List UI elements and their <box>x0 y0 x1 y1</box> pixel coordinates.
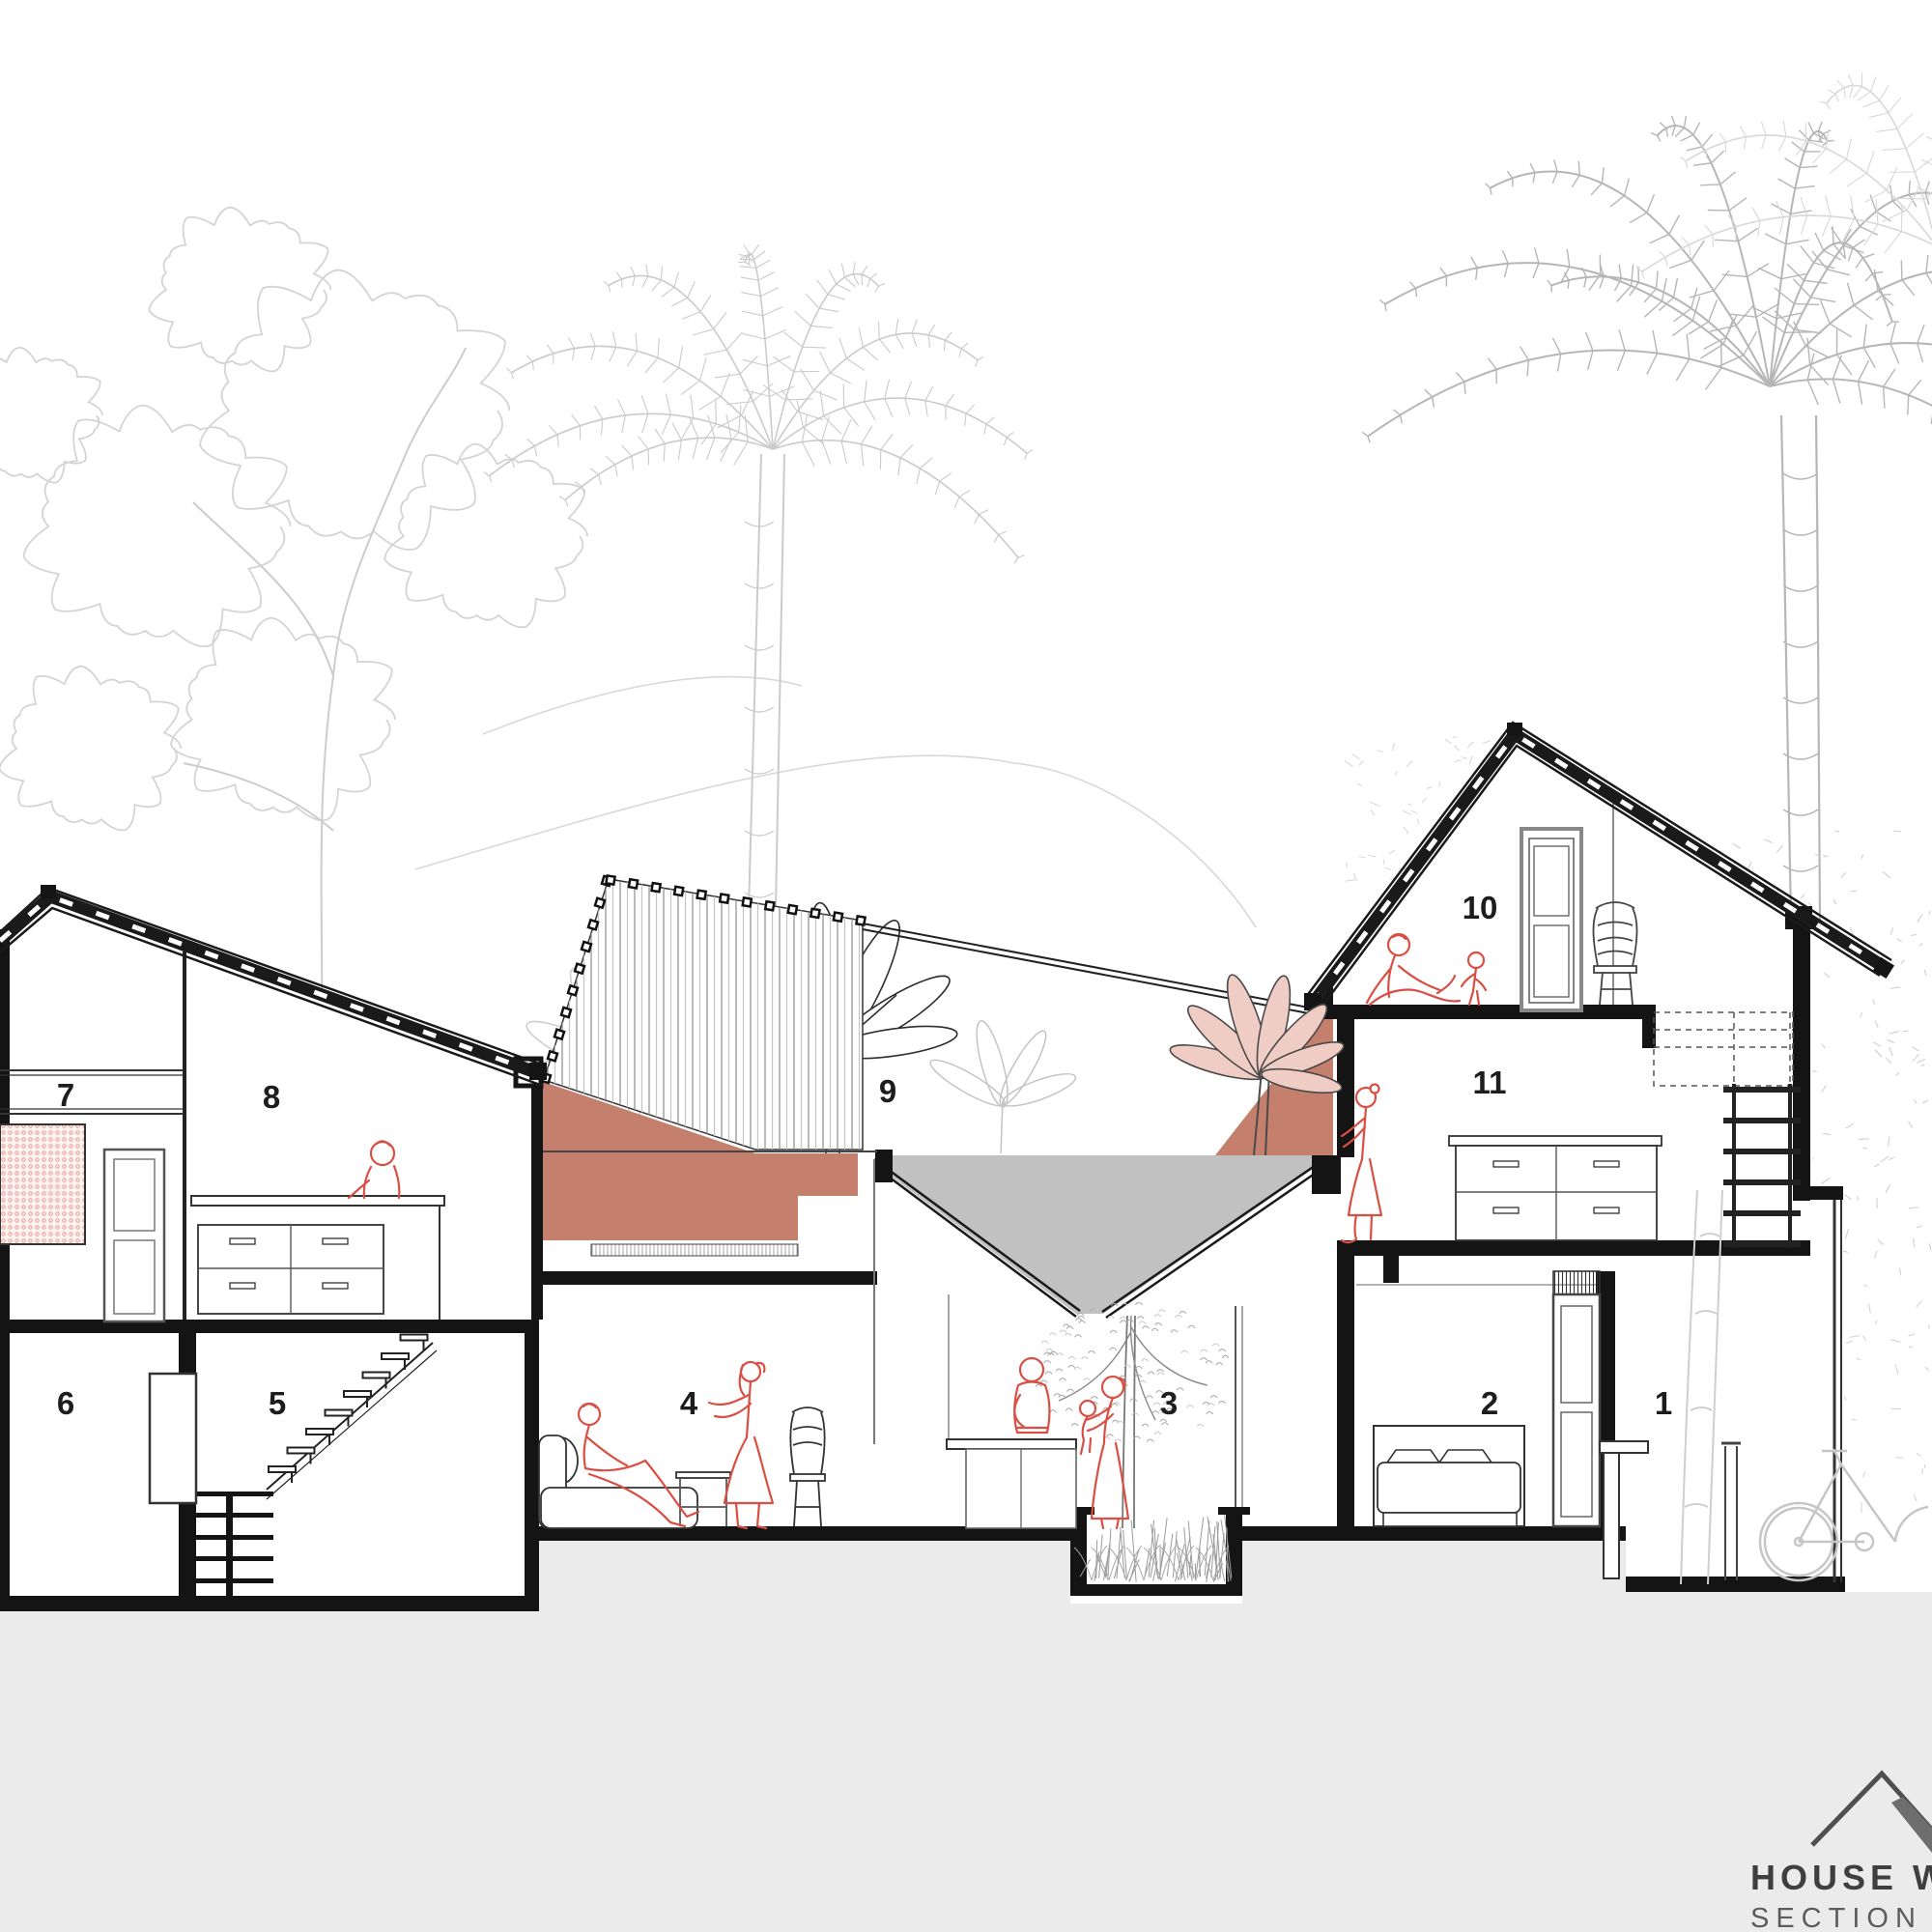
palm-barb <box>565 499 568 505</box>
wall-3-2 <box>1337 1256 1354 1531</box>
palm-barb <box>1738 228 1757 241</box>
palm-barb <box>1456 372 1463 382</box>
stipple-stroke <box>1863 1285 1866 1287</box>
palm-barb <box>1530 163 1535 173</box>
stair-tread <box>382 1353 409 1359</box>
logo-title: HOUSE WIT <box>1750 1858 1932 1897</box>
palm-barb <box>590 469 599 475</box>
fixing-tab <box>629 879 638 888</box>
palm-barb <box>862 266 867 274</box>
label-room-6: 6 <box>57 1385 74 1421</box>
palm-barb <box>935 481 939 495</box>
palm-barb <box>715 374 740 378</box>
palm-barb <box>828 295 845 299</box>
palm-barb <box>549 425 557 434</box>
stair-tread <box>288 1448 315 1454</box>
palm-barb <box>1925 193 1929 205</box>
stipple-stroke <box>1924 969 1926 976</box>
palm-barb <box>742 311 763 316</box>
stipple-stroke <box>1861 855 1862 859</box>
stipple-stroke <box>1407 804 1411 806</box>
palm-barb <box>844 408 859 426</box>
stipple-stroke <box>1868 1304 1870 1314</box>
palm-barb <box>1728 214 1736 226</box>
palm-barb <box>484 472 490 476</box>
label-room-10: 10 <box>1463 890 1498 925</box>
palm-barb <box>879 339 891 353</box>
palm-frond <box>1551 276 1770 386</box>
palm-barb <box>905 382 912 398</box>
palm-trunk-ring <box>1783 866 1818 871</box>
palm-barb <box>1863 325 1866 348</box>
fixing-tab <box>595 898 605 908</box>
palm-barb <box>1884 386 1885 408</box>
palm-barb <box>1700 344 1723 358</box>
floor-basement <box>0 1596 539 1611</box>
palm-barb <box>532 361 533 370</box>
palm-barb <box>718 415 742 428</box>
palm-barb <box>740 267 755 269</box>
palm-barb <box>1836 355 1852 375</box>
stipple-stroke <box>1849 1336 1859 1338</box>
stipple-stroke <box>1913 1054 1918 1062</box>
palm-barb <box>853 262 855 274</box>
fixing-tab <box>788 905 797 914</box>
palm-barb <box>1502 250 1508 264</box>
palm-barb <box>1572 175 1579 186</box>
palm-trunk-ring <box>1783 641 1818 647</box>
stair-tread <box>326 1410 353 1416</box>
palm-barb <box>1784 158 1800 168</box>
palm-barb <box>1385 304 1386 311</box>
fixing-tab <box>743 897 752 906</box>
palm-frond <box>773 398 1027 453</box>
stipple-stroke <box>1822 1086 1826 1093</box>
stipple-stroke <box>1439 781 1440 787</box>
palm-barb <box>1682 238 1690 245</box>
stipple-stroke <box>1929 911 1930 915</box>
palm-barb <box>610 347 616 361</box>
palm-barb <box>648 449 649 466</box>
palm-barb <box>1794 303 1819 304</box>
palm-barb <box>1880 85 1889 100</box>
palm-barb <box>1883 295 1891 296</box>
palm-barb <box>721 439 731 462</box>
palm-trunk <box>1781 415 1820 920</box>
palm-barb <box>928 325 934 335</box>
stipple-stroke <box>1925 1367 1929 1371</box>
palm-barb <box>817 280 828 295</box>
stipple-stroke <box>1883 871 1890 878</box>
stipple-stroke <box>1893 831 1901 832</box>
palm-barb <box>739 255 748 256</box>
palm-barb <box>1630 213 1647 223</box>
palm-barb <box>1535 247 1539 263</box>
palm-barb <box>1859 382 1862 405</box>
wall-5-right <box>525 1333 539 1596</box>
palm-barb <box>900 445 913 458</box>
stipple-stroke <box>1857 1358 1861 1360</box>
palm-barb <box>1558 354 1561 371</box>
palm-barb <box>1687 147 1702 151</box>
palm-barb <box>646 264 648 276</box>
palm-barb <box>820 352 831 373</box>
palm-barb <box>1896 198 1923 199</box>
palm-barb <box>688 281 696 298</box>
palm-barb <box>758 272 774 281</box>
palm-barb <box>940 473 952 482</box>
palm-barb <box>569 337 575 348</box>
palm-trunk-ring <box>1783 697 1818 703</box>
palm-barb <box>1610 196 1625 207</box>
palm-barb <box>661 266 662 280</box>
palm-barb <box>1762 317 1784 332</box>
stipple-stroke <box>1844 1397 1846 1401</box>
palm-barb <box>1409 282 1415 289</box>
palm-barb <box>1368 437 1370 443</box>
palm-barb <box>1869 113 1889 118</box>
palm-barb <box>844 277 855 287</box>
palm-barb <box>1822 216 1831 237</box>
stair-tread <box>401 1335 428 1341</box>
palm-barb <box>830 373 851 384</box>
fixing-tab <box>568 985 578 995</box>
planter-bottom <box>1070 1584 1242 1596</box>
palm-barb <box>961 343 968 349</box>
palm-barb <box>664 443 665 461</box>
palm-frond <box>1827 85 1932 246</box>
palm-barb <box>1024 453 1027 459</box>
palm-barb <box>1584 277 1586 288</box>
palm-barb <box>1684 116 1686 128</box>
palm-barb <box>1897 114 1913 129</box>
stipple-stroke <box>1385 867 1391 869</box>
tree-canopy-blob <box>200 270 509 550</box>
stipple-stroke <box>1389 850 1395 854</box>
fixing-tab <box>554 1030 564 1039</box>
palm-barb <box>912 333 916 347</box>
stipple-stroke <box>1359 857 1366 858</box>
palm-barb <box>1883 149 1906 151</box>
porch-ledge <box>1793 1186 1843 1200</box>
palm-barb <box>795 311 811 326</box>
palm-barb <box>663 368 678 383</box>
palm-barb <box>1632 265 1634 286</box>
stipple-stroke <box>1834 831 1839 832</box>
palm-barb <box>1864 224 1878 245</box>
fixing-tab <box>582 942 591 952</box>
palm-barb <box>1681 135 1693 141</box>
stipple-stroke <box>1889 1032 1899 1034</box>
palm-barb <box>1830 159 1846 173</box>
stipple-stroke <box>1875 1321 1877 1324</box>
stipple-stroke <box>1445 739 1452 744</box>
palm-barb <box>1505 264 1509 277</box>
palm-barb <box>1909 380 1921 395</box>
stipple-stroke <box>1469 755 1472 764</box>
stipple-stroke <box>1896 1072 1899 1075</box>
palm-barb <box>1918 325 1924 343</box>
palm-barb <box>1379 299 1384 304</box>
palm-barb <box>1642 271 1644 278</box>
logo-subtitle: SECTION - <box>1750 1903 1932 1932</box>
palm-barb <box>1027 450 1033 454</box>
palm-barb <box>594 406 603 419</box>
palm-barb <box>1619 329 1625 350</box>
stipple-stroke <box>1863 1148 1867 1149</box>
palm-barb <box>1805 123 1806 141</box>
stipple-stroke <box>1881 1156 1889 1162</box>
stipple-stroke <box>1890 987 1901 989</box>
palm-barb <box>1887 322 1892 326</box>
stipple-stroke <box>1895 1364 1898 1375</box>
stipple-stroke <box>1917 1226 1921 1228</box>
palm-barb <box>1849 247 1854 261</box>
palm-barb <box>742 391 753 415</box>
palm-barb <box>572 414 581 426</box>
palm-barb <box>1676 359 1690 381</box>
palm-barb <box>1636 268 1642 271</box>
palm-barb <box>1830 324 1851 337</box>
stipple-stroke <box>1918 915 1922 923</box>
palm-barb <box>1440 268 1446 276</box>
palm-barb <box>1619 265 1621 278</box>
stipple-stroke <box>1929 1243 1931 1251</box>
palm-barb <box>813 390 837 400</box>
stipple-stroke <box>1862 1336 1866 1341</box>
palm-barb <box>806 294 819 308</box>
palm-barb <box>1851 196 1855 219</box>
stipple-stroke <box>1909 1207 1918 1208</box>
palm-barb <box>1554 159 1557 171</box>
palm-barb <box>1926 136 1932 147</box>
palm-barb <box>1787 265 1804 281</box>
fixing-tab <box>697 891 706 899</box>
stipple-stroke <box>1901 960 1904 964</box>
palm-barb <box>740 355 757 374</box>
palm-barb <box>1783 121 1786 136</box>
ceiling-room4 <box>539 1271 877 1285</box>
section-drawing-sheet: 1 2 3 4 5 6 7 8 9 10 11 HOUSE WIT SECTIO… <box>0 0 1932 1932</box>
palm-barb <box>1711 151 1723 163</box>
stipple-stroke <box>1890 1340 1900 1342</box>
palm-barb <box>1847 283 1854 305</box>
palm-barb <box>1018 555 1025 558</box>
palm-barb <box>662 414 670 434</box>
palm-barb <box>1810 298 1835 302</box>
palm-barb <box>1778 179 1796 188</box>
palm-barb <box>652 280 662 291</box>
stipple-stroke <box>1747 861 1751 869</box>
stipple-stroke <box>1861 1012 1861 1017</box>
palm-barb <box>1870 76 1875 92</box>
palm-barb <box>512 373 514 380</box>
palm-barb <box>1674 278 1678 298</box>
fixing-tab <box>652 883 661 892</box>
palm-trunk-ring <box>1783 473 1818 479</box>
palm-barb <box>1823 130 1831 134</box>
stipple-stroke <box>1874 1042 1881 1047</box>
palm-barb <box>885 399 893 417</box>
palm-barb <box>679 347 683 368</box>
palm-barb <box>1807 380 1818 405</box>
palm-barb <box>875 286 878 292</box>
palm-barb <box>1915 156 1932 172</box>
stipple-stroke <box>1844 1195 1851 1200</box>
palm-barb <box>1672 116 1676 126</box>
palm-barb <box>744 244 750 253</box>
stipple-stroke <box>1732 843 1740 848</box>
palm-barb <box>1747 264 1769 277</box>
stipple-stroke <box>1483 741 1492 744</box>
palm-barb <box>1567 249 1570 267</box>
tree-canopy-blob <box>24 406 291 647</box>
palm-barb <box>616 272 622 279</box>
palm-barb <box>601 419 603 436</box>
palm-barb <box>1666 128 1668 137</box>
fixing-tab <box>720 895 728 903</box>
palm-barb <box>862 274 863 285</box>
palm-barb <box>1802 215 1807 235</box>
palm-barb <box>925 386 933 401</box>
stipple-stroke <box>1915 1494 1917 1501</box>
palm-barb <box>726 332 742 350</box>
stipple-stroke <box>1874 1164 1879 1167</box>
palm-barb <box>1876 295 1883 300</box>
palm-barb <box>1762 135 1766 149</box>
stipple-stroke <box>1911 934 1917 935</box>
stipple-stroke <box>1846 1341 1853 1344</box>
palm-barb <box>819 308 838 312</box>
palm-barb <box>734 441 748 465</box>
palm-barb <box>994 535 998 543</box>
palm-barb <box>1843 219 1854 240</box>
pink-vent-screen <box>0 1124 85 1244</box>
palm-barb <box>1693 163 1711 165</box>
palm-barb <box>1744 137 1746 150</box>
palm-barb <box>1799 130 1808 140</box>
label-room-5: 5 <box>269 1385 286 1421</box>
palm-barb <box>1858 92 1871 100</box>
palm-barb <box>645 357 658 373</box>
stipple-stroke <box>1886 1058 1891 1064</box>
palm-barb <box>1644 289 1656 302</box>
palm-barb <box>1862 254 1874 258</box>
palm-barb <box>1926 255 1928 272</box>
palm-barb <box>1656 270 1658 288</box>
palm-barb <box>1828 90 1835 94</box>
kitchen-counter-room3 <box>947 1439 1076 1528</box>
stipple-stroke <box>1403 810 1411 814</box>
stipple-stroke <box>1919 943 1923 946</box>
palm-barb <box>1691 288 1697 308</box>
palm-barb <box>1591 184 1602 195</box>
stipple-stroke <box>1418 818 1419 824</box>
palm-barb <box>1890 323 1895 344</box>
stipple-stroke <box>1347 863 1348 867</box>
palm-trunk-ring <box>1783 529 1818 535</box>
palm-barb <box>801 369 814 390</box>
palm-barb <box>1827 270 1850 275</box>
palm-barb <box>1795 186 1814 189</box>
palm-barb <box>527 439 535 445</box>
palm-barb <box>678 440 681 460</box>
tree-canopy-blob <box>0 667 181 831</box>
palm-barb <box>1882 211 1907 222</box>
valley-bearing-beam <box>1312 1155 1341 1194</box>
palm-barb <box>1687 334 1690 359</box>
palm-barb <box>1548 280 1551 285</box>
tree-canopy-blob <box>0 348 102 483</box>
palm-barb <box>1719 355 1744 366</box>
palm-barb <box>1758 220 1760 236</box>
palm-barb <box>1486 184 1491 188</box>
palm-barb <box>1647 354 1658 375</box>
stipple-stroke <box>1924 1464 1925 1468</box>
palm-frond <box>1770 343 1932 431</box>
palm-barb <box>1791 211 1812 213</box>
stipple-stroke <box>1875 1251 1877 1258</box>
palm-barb <box>658 338 659 357</box>
stipple-stroke <box>1776 845 1782 852</box>
palm-barb <box>810 326 832 327</box>
palm-barb <box>1690 291 1714 298</box>
palm-barb <box>1872 271 1883 273</box>
palm-barb <box>557 435 558 447</box>
palm-barb <box>966 405 975 413</box>
palm-barb <box>1586 332 1593 351</box>
palm-barb <box>912 320 917 333</box>
stipple-stroke <box>1917 1059 1925 1063</box>
palm-barb <box>861 444 863 466</box>
palm-barb <box>714 312 726 329</box>
palm-barb <box>1675 128 1684 136</box>
label-room-2: 2 <box>1481 1385 1498 1421</box>
stipple-stroke <box>1359 760 1364 765</box>
stipple-stroke <box>1427 787 1433 789</box>
palm-barb <box>1578 161 1579 176</box>
section-drawing: 1 2 3 4 5 6 7 8 9 10 11 HOUSE WIT SECTIO… <box>0 0 1932 1932</box>
palm-barb <box>1800 166 1817 167</box>
palm-barb <box>1862 100 1879 107</box>
palm-barb <box>895 334 903 349</box>
floor-left-upper <box>0 1320 539 1333</box>
palm-frond <box>490 413 773 475</box>
palm-barb <box>1808 123 1813 134</box>
palm-barb <box>1740 127 1746 137</box>
palm-barb <box>978 356 983 360</box>
palm-barb <box>599 474 602 484</box>
fixing-tab <box>674 887 683 895</box>
stipple-stroke <box>1875 1050 1882 1057</box>
palm-barb <box>672 423 682 440</box>
palm-barb <box>699 358 706 381</box>
palm-barb <box>548 345 554 354</box>
palm-barb <box>1818 122 1822 131</box>
palm-barb <box>1850 86 1853 98</box>
fixing-tab <box>834 913 842 922</box>
palm-barb <box>925 401 927 416</box>
palm-barb <box>1729 198 1747 211</box>
palm-barb <box>1665 257 1667 266</box>
door-head-stub <box>1383 1256 1399 1283</box>
palm-barb <box>1887 167 1897 190</box>
palm-barb <box>965 413 966 426</box>
palm-barb <box>1662 278 1666 301</box>
palm-barb <box>1784 332 1811 333</box>
palm-barb <box>1689 322 1709 334</box>
palm-barb <box>642 276 648 287</box>
